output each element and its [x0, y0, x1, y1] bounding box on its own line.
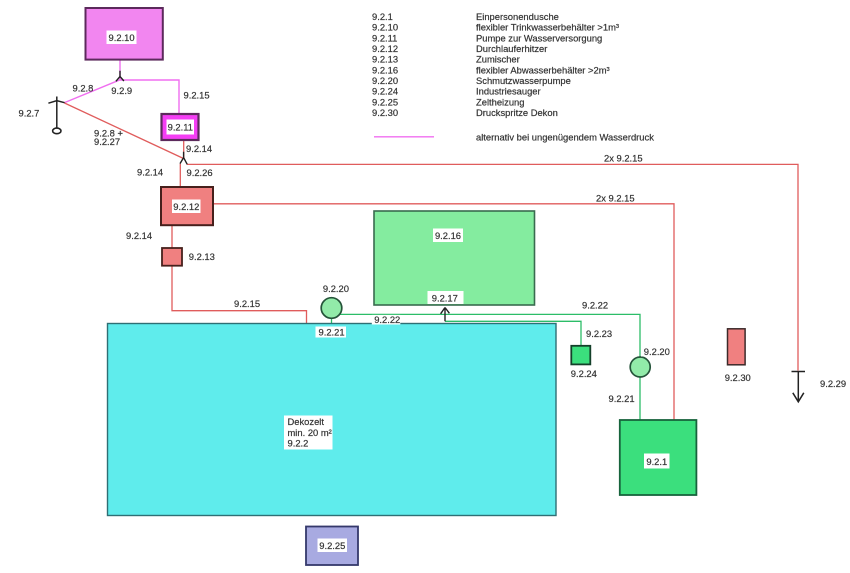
svg-text:9.2.22: 9.2.22: [582, 300, 608, 311]
svg-text:9.2.22: 9.2.22: [374, 314, 400, 325]
svg-text:9.2.7: 9.2.7: [19, 108, 40, 119]
svg-text:9.2.8: 9.2.8: [73, 82, 94, 93]
svg-text:9.2.25: 9.2.25: [319, 540, 345, 551]
svg-text:9.2.1: 9.2.1: [646, 456, 667, 467]
svg-text:alternativ bei ungenügendem Wa: alternativ bei ungenügendem Wasserdruck: [476, 131, 654, 142]
svg-text:9.2.9: 9.2.9: [111, 85, 132, 96]
svg-text:9.2.16: 9.2.16: [372, 64, 398, 75]
svg-text:9.2.30: 9.2.30: [372, 107, 398, 118]
svg-text:9.2.21: 9.2.21: [319, 326, 345, 337]
svg-text:9.2.20: 9.2.20: [323, 283, 349, 294]
svg-text:9.2.10: 9.2.10: [109, 32, 135, 43]
svg-text:min. 20 m²: min. 20 m²: [288, 427, 332, 438]
svg-text:Dekozelt: Dekozelt: [288, 416, 325, 427]
svg-text:9.2.11: 9.2.11: [372, 32, 397, 43]
svg-text:9.2.13: 9.2.13: [372, 54, 398, 65]
svg-text:flexibler Trinkwasserbehälter: flexibler Trinkwasserbehälter >1m³: [476, 22, 619, 33]
svg-text:9.2.16: 9.2.16: [435, 230, 461, 241]
svg-text:9.2.14: 9.2.14: [137, 166, 163, 177]
svg-text:9.2.25: 9.2.25: [372, 96, 398, 107]
svg-text:9.2.29: 9.2.29: [820, 378, 846, 389]
svg-text:9.2.27: 9.2.27: [94, 136, 120, 147]
svg-text:9.2.14: 9.2.14: [186, 143, 212, 154]
svg-text:Durchlauferhitzer: Durchlauferhitzer: [476, 43, 547, 54]
svg-text:9.2.10: 9.2.10: [372, 22, 398, 33]
svg-text:9.2.30: 9.2.30: [725, 372, 751, 383]
svg-text:9.2.17: 9.2.17: [432, 293, 458, 304]
svg-text:Schmutzwasserpumpe: Schmutzwasserpumpe: [476, 75, 571, 86]
svg-text:9.2.23: 9.2.23: [586, 328, 612, 339]
svg-text:9.2.2: 9.2.2: [288, 437, 309, 448]
svg-text:9.2.15: 9.2.15: [234, 298, 260, 309]
svg-text:9.2.26: 9.2.26: [187, 167, 213, 178]
svg-text:9.2.24: 9.2.24: [372, 86, 398, 97]
svg-text:Pumpe zur Wasserversorgung: Pumpe zur Wasserversorgung: [476, 32, 602, 43]
svg-text:Zumischer: Zumischer: [476, 54, 520, 65]
svg-text:2x 9.2.15: 2x 9.2.15: [596, 193, 635, 204]
svg-text:9.2.20: 9.2.20: [644, 346, 670, 357]
svg-text:9.2.15: 9.2.15: [184, 90, 210, 101]
svg-text:Einpersonendusche: Einpersonendusche: [476, 11, 559, 22]
svg-text:flexibler Abwasserbehälter >2m: flexibler Abwasserbehälter >2m³: [476, 64, 610, 75]
svg-text:9.2.12: 9.2.12: [372, 43, 398, 54]
svg-text:9.2.21: 9.2.21: [609, 393, 635, 404]
svg-text:9.2.20: 9.2.20: [372, 75, 398, 86]
svg-text:2x 9.2.15: 2x 9.2.15: [604, 153, 643, 164]
svg-text:9.2.24: 9.2.24: [571, 368, 597, 379]
svg-text:9.2.11: 9.2.11: [168, 122, 193, 133]
svg-text:Zeltheizung: Zeltheizung: [476, 96, 524, 107]
svg-text:9.2.13: 9.2.13: [189, 251, 215, 262]
svg-text:9.2.1: 9.2.1: [372, 11, 393, 22]
svg-text:9.2.14: 9.2.14: [126, 230, 152, 241]
svg-text:9.2.12: 9.2.12: [173, 201, 199, 212]
svg-text:Industriesauger: Industriesauger: [476, 86, 541, 97]
svg-text:Druckspritze Dekon: Druckspritze Dekon: [476, 107, 558, 118]
